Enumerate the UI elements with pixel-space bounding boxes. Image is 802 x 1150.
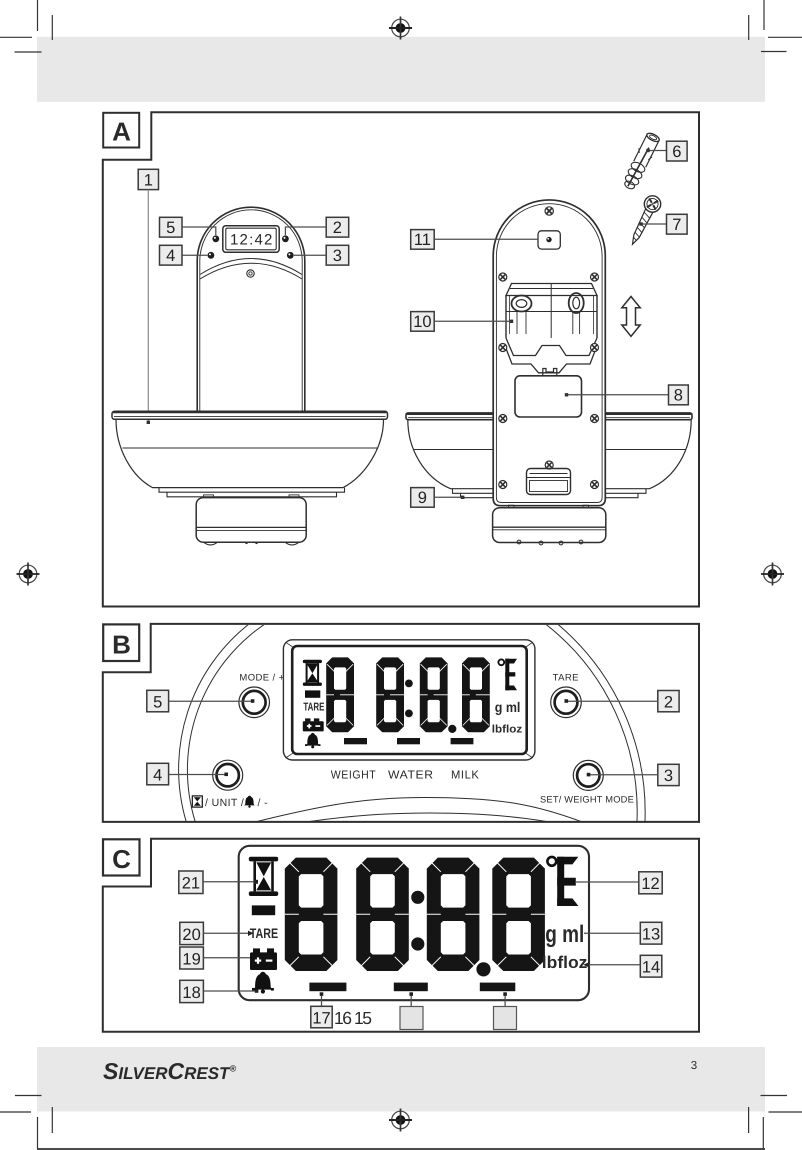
svg-text:MILK: MILK (451, 769, 480, 782)
svg-text:/ UNIT /: / UNIT / (205, 797, 244, 809)
svg-text:13: 13 (642, 926, 660, 944)
svg-text:C: C (112, 844, 131, 874)
svg-text:lbfloz: lbfloz (492, 724, 523, 736)
svg-text:7: 7 (672, 216, 681, 234)
svg-text:1: 1 (144, 171, 153, 189)
svg-text:4: 4 (166, 247, 175, 265)
svg-text:12:42: 12:42 (230, 232, 274, 249)
svg-text:SET/ WEIGHT MODE: SET/ WEIGHT MODE (540, 794, 634, 804)
svg-text:5: 5 (153, 693, 162, 711)
svg-text:20: 20 (182, 926, 200, 944)
svg-text:9: 9 (418, 489, 427, 507)
svg-text:12: 12 (641, 875, 659, 893)
svg-text:5: 5 (166, 219, 175, 237)
svg-text:g ml: g ml (545, 921, 584, 948)
svg-text:2: 2 (333, 219, 342, 237)
svg-text:3: 3 (691, 1060, 697, 1072)
svg-text:8: 8 (674, 387, 683, 405)
svg-text:19: 19 (182, 950, 200, 968)
svg-text:lbfloz: lbfloz (542, 953, 588, 972)
svg-text:MODE / +: MODE / + (239, 672, 284, 683)
svg-text:21: 21 (182, 875, 200, 893)
svg-text:6: 6 (672, 143, 681, 161)
svg-text:18: 18 (182, 984, 200, 1002)
svg-text:3: 3 (664, 767, 673, 785)
svg-text:14: 14 (642, 959, 660, 977)
svg-text:/ -: / - (258, 797, 269, 809)
svg-text:4: 4 (153, 766, 162, 784)
svg-text:TARE: TARE (303, 702, 324, 714)
svg-text:11: 11 (414, 231, 431, 249)
svg-text:TARE: TARE (553, 672, 579, 683)
svg-text:WATER: WATER (388, 769, 434, 782)
svg-text:16 15: 16 15 (334, 1008, 372, 1028)
svg-text:A: A (112, 117, 131, 147)
svg-text:17: 17 (312, 1009, 330, 1027)
svg-text:2: 2 (664, 693, 673, 711)
svg-text:B: B (112, 630, 131, 660)
svg-text:WEIGHT: WEIGHT (331, 769, 377, 782)
svg-text:3: 3 (333, 247, 342, 265)
svg-text:10: 10 (413, 313, 431, 331)
svg-text:TARE: TARE (250, 926, 278, 941)
svg-text:g ml: g ml (495, 699, 521, 715)
